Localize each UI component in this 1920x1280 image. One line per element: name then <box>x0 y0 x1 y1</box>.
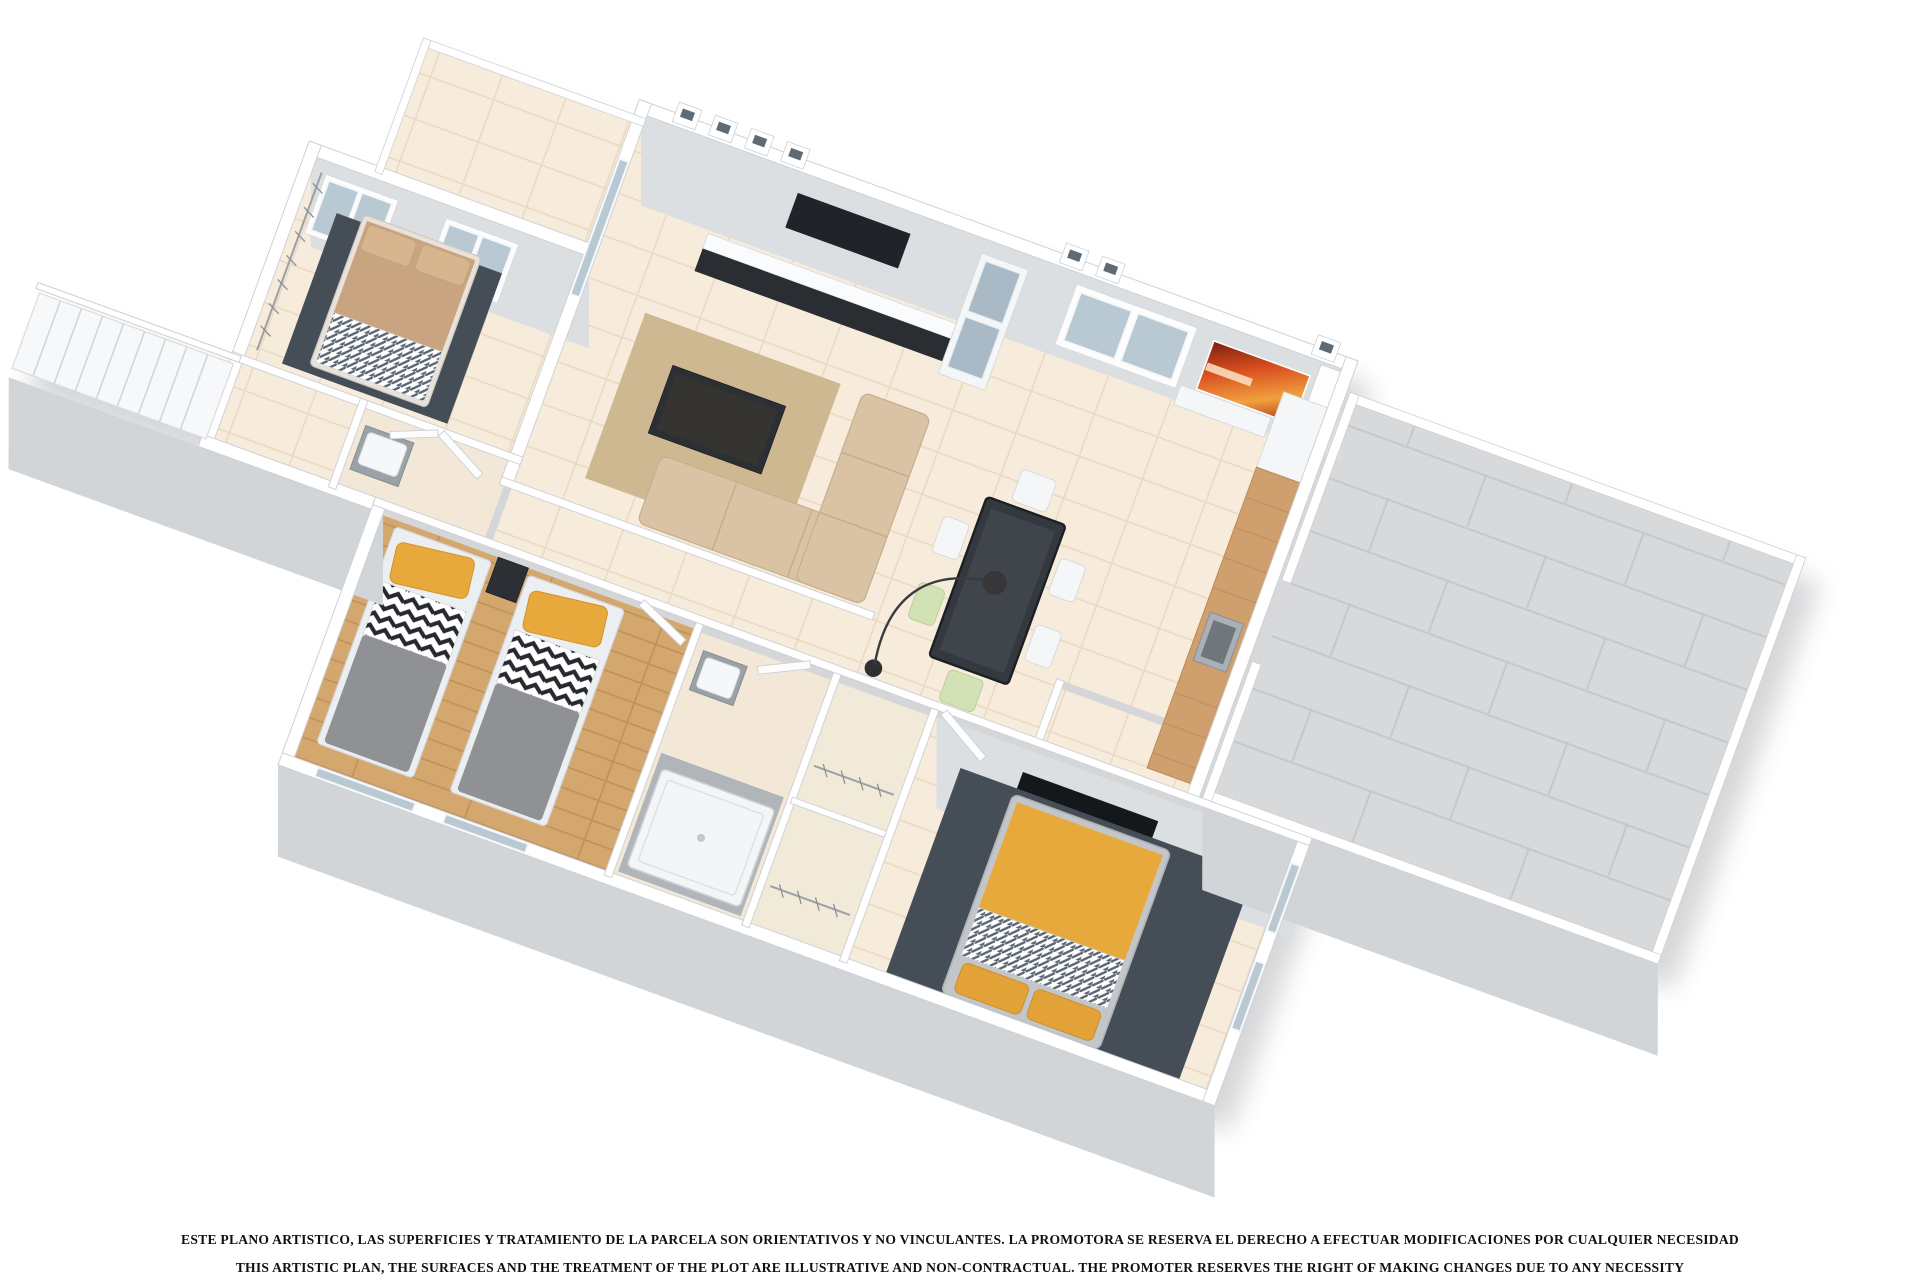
bathroom1-door <box>390 430 438 439</box>
disclaimer-line-es: ESTE PLANO ARTISTICO, LAS SUPERFICIES Y … <box>0 1226 1920 1254</box>
disclaimer-line-en: THIS ARTISTIC PLAN, THE SURFACES AND THE… <box>0 1254 1920 1280</box>
building <box>0 0 1850 1280</box>
floor-plan-svg <box>0 0 1920 1280</box>
floor-plan-page: ESTE PLANO ARTISTICO, LAS SUPERFICIES Y … <box>0 0 1920 1280</box>
disclaimer: ESTE PLANO ARTISTICO, LAS SUPERFICIES Y … <box>0 1226 1920 1280</box>
